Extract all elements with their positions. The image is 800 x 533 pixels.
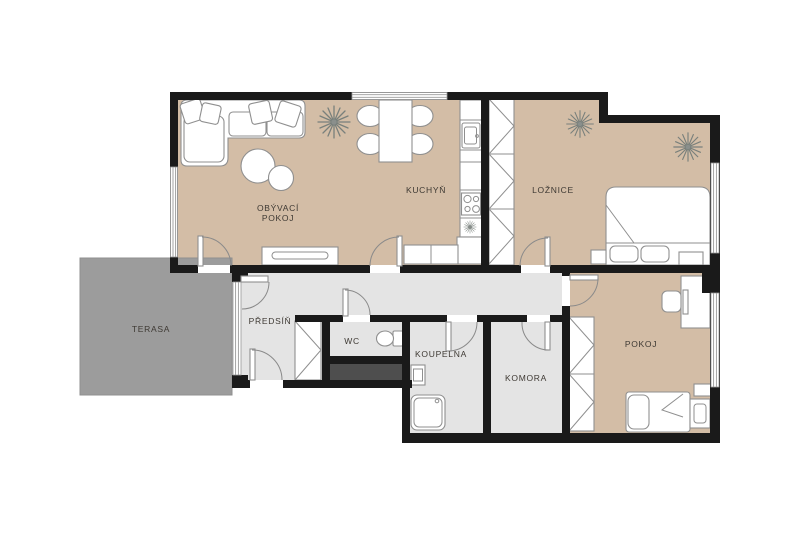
window-living-top bbox=[352, 93, 447, 100]
office-chair bbox=[662, 291, 681, 312]
room-label-predsin: PŘEDSÍŇ bbox=[249, 316, 292, 326]
window-living-left bbox=[171, 167, 178, 257]
entrance-door-leaf bbox=[250, 349, 255, 380]
terrace-door-leaf bbox=[241, 276, 268, 282]
throw-pillow bbox=[199, 102, 222, 125]
wc-furniture bbox=[377, 331, 404, 346]
dining-table bbox=[379, 100, 412, 162]
fridge-snowflake-icon bbox=[464, 221, 476, 233]
hall-furniture bbox=[295, 321, 321, 380]
bench bbox=[679, 252, 703, 265]
wc-door-leaf bbox=[343, 289, 348, 316]
floor-plan: OBÝVACÍ POKOJ KUCHYŇ LOŽNICE TERASA PŘED… bbox=[0, 0, 800, 533]
bathroom-door-opening bbox=[447, 315, 477, 322]
bedroom-door-leaf bbox=[545, 237, 550, 266]
pillow bbox=[641, 246, 669, 262]
room-label-loznice: LOŽNICE bbox=[532, 185, 574, 195]
storage-door-opening bbox=[527, 315, 550, 322]
sideboard bbox=[262, 247, 338, 265]
pillow bbox=[628, 395, 649, 429]
throw-pillow bbox=[248, 100, 273, 125]
room-label-kuchyn: KUCHYŇ bbox=[406, 185, 446, 195]
room-label-line2: POKOJ bbox=[257, 213, 299, 223]
window-hall-terrace bbox=[233, 282, 241, 375]
monitor bbox=[683, 290, 688, 314]
toilet-tank bbox=[393, 331, 403, 346]
room-label-terasa: TERASA bbox=[132, 324, 170, 334]
wall-chunk-pokoj bbox=[702, 273, 720, 293]
living-room-door-leaf bbox=[198, 236, 203, 266]
wall-kitchen-bedroom bbox=[481, 92, 489, 273]
hall-wardrobe bbox=[295, 321, 321, 380]
wall-bathroom-west bbox=[402, 322, 410, 443]
wall-chunk-terrace-bottom bbox=[232, 375, 248, 388]
wall-mid bbox=[170, 265, 720, 273]
wall-step-h bbox=[599, 115, 720, 123]
shower-icon bbox=[411, 395, 445, 430]
bathroom-door-leaf bbox=[446, 322, 451, 351]
plant-icon bbox=[318, 106, 350, 138]
nightstand bbox=[591, 250, 606, 264]
coffee-table-small bbox=[269, 166, 294, 191]
radiator bbox=[694, 384, 711, 396]
window-bedroom-right bbox=[711, 163, 719, 253]
window-pokoj-right bbox=[711, 293, 719, 387]
room-label-komora: KOMORA bbox=[505, 373, 547, 383]
entrance-door-opening bbox=[250, 380, 283, 388]
wall-wc-west bbox=[322, 315, 330, 388]
pokoj-door-opening bbox=[562, 276, 570, 306]
wall-bathroom-storage bbox=[483, 322, 491, 433]
room-label-wc: WC bbox=[344, 336, 360, 346]
pillow bbox=[610, 246, 638, 262]
plant-icon bbox=[674, 133, 702, 161]
storage-door-leaf bbox=[545, 322, 550, 350]
floor-plan-drawing bbox=[0, 0, 800, 533]
room-label-obyvaci-pokoj: OBÝVACÍ POKOJ bbox=[257, 203, 299, 223]
pokoj-door-leaf bbox=[570, 275, 598, 280]
toilet-icon bbox=[377, 331, 394, 346]
wall-wc-south bbox=[322, 356, 410, 364]
kitchen-door-leaf bbox=[397, 236, 402, 266]
tall-cabinet bbox=[457, 237, 482, 264]
wall-bottom bbox=[402, 433, 720, 443]
kitchen-counter bbox=[460, 100, 482, 237]
shaft bbox=[328, 362, 404, 382]
room-label-koupelna: KOUPELNA bbox=[415, 349, 467, 359]
plant-icon bbox=[567, 111, 594, 138]
kitchen-door-opening bbox=[370, 265, 400, 273]
nightstand bbox=[690, 399, 710, 428]
room-label-line1: OBÝVACÍ bbox=[257, 203, 299, 213]
room-label-pokoj: POKOJ bbox=[625, 339, 657, 349]
